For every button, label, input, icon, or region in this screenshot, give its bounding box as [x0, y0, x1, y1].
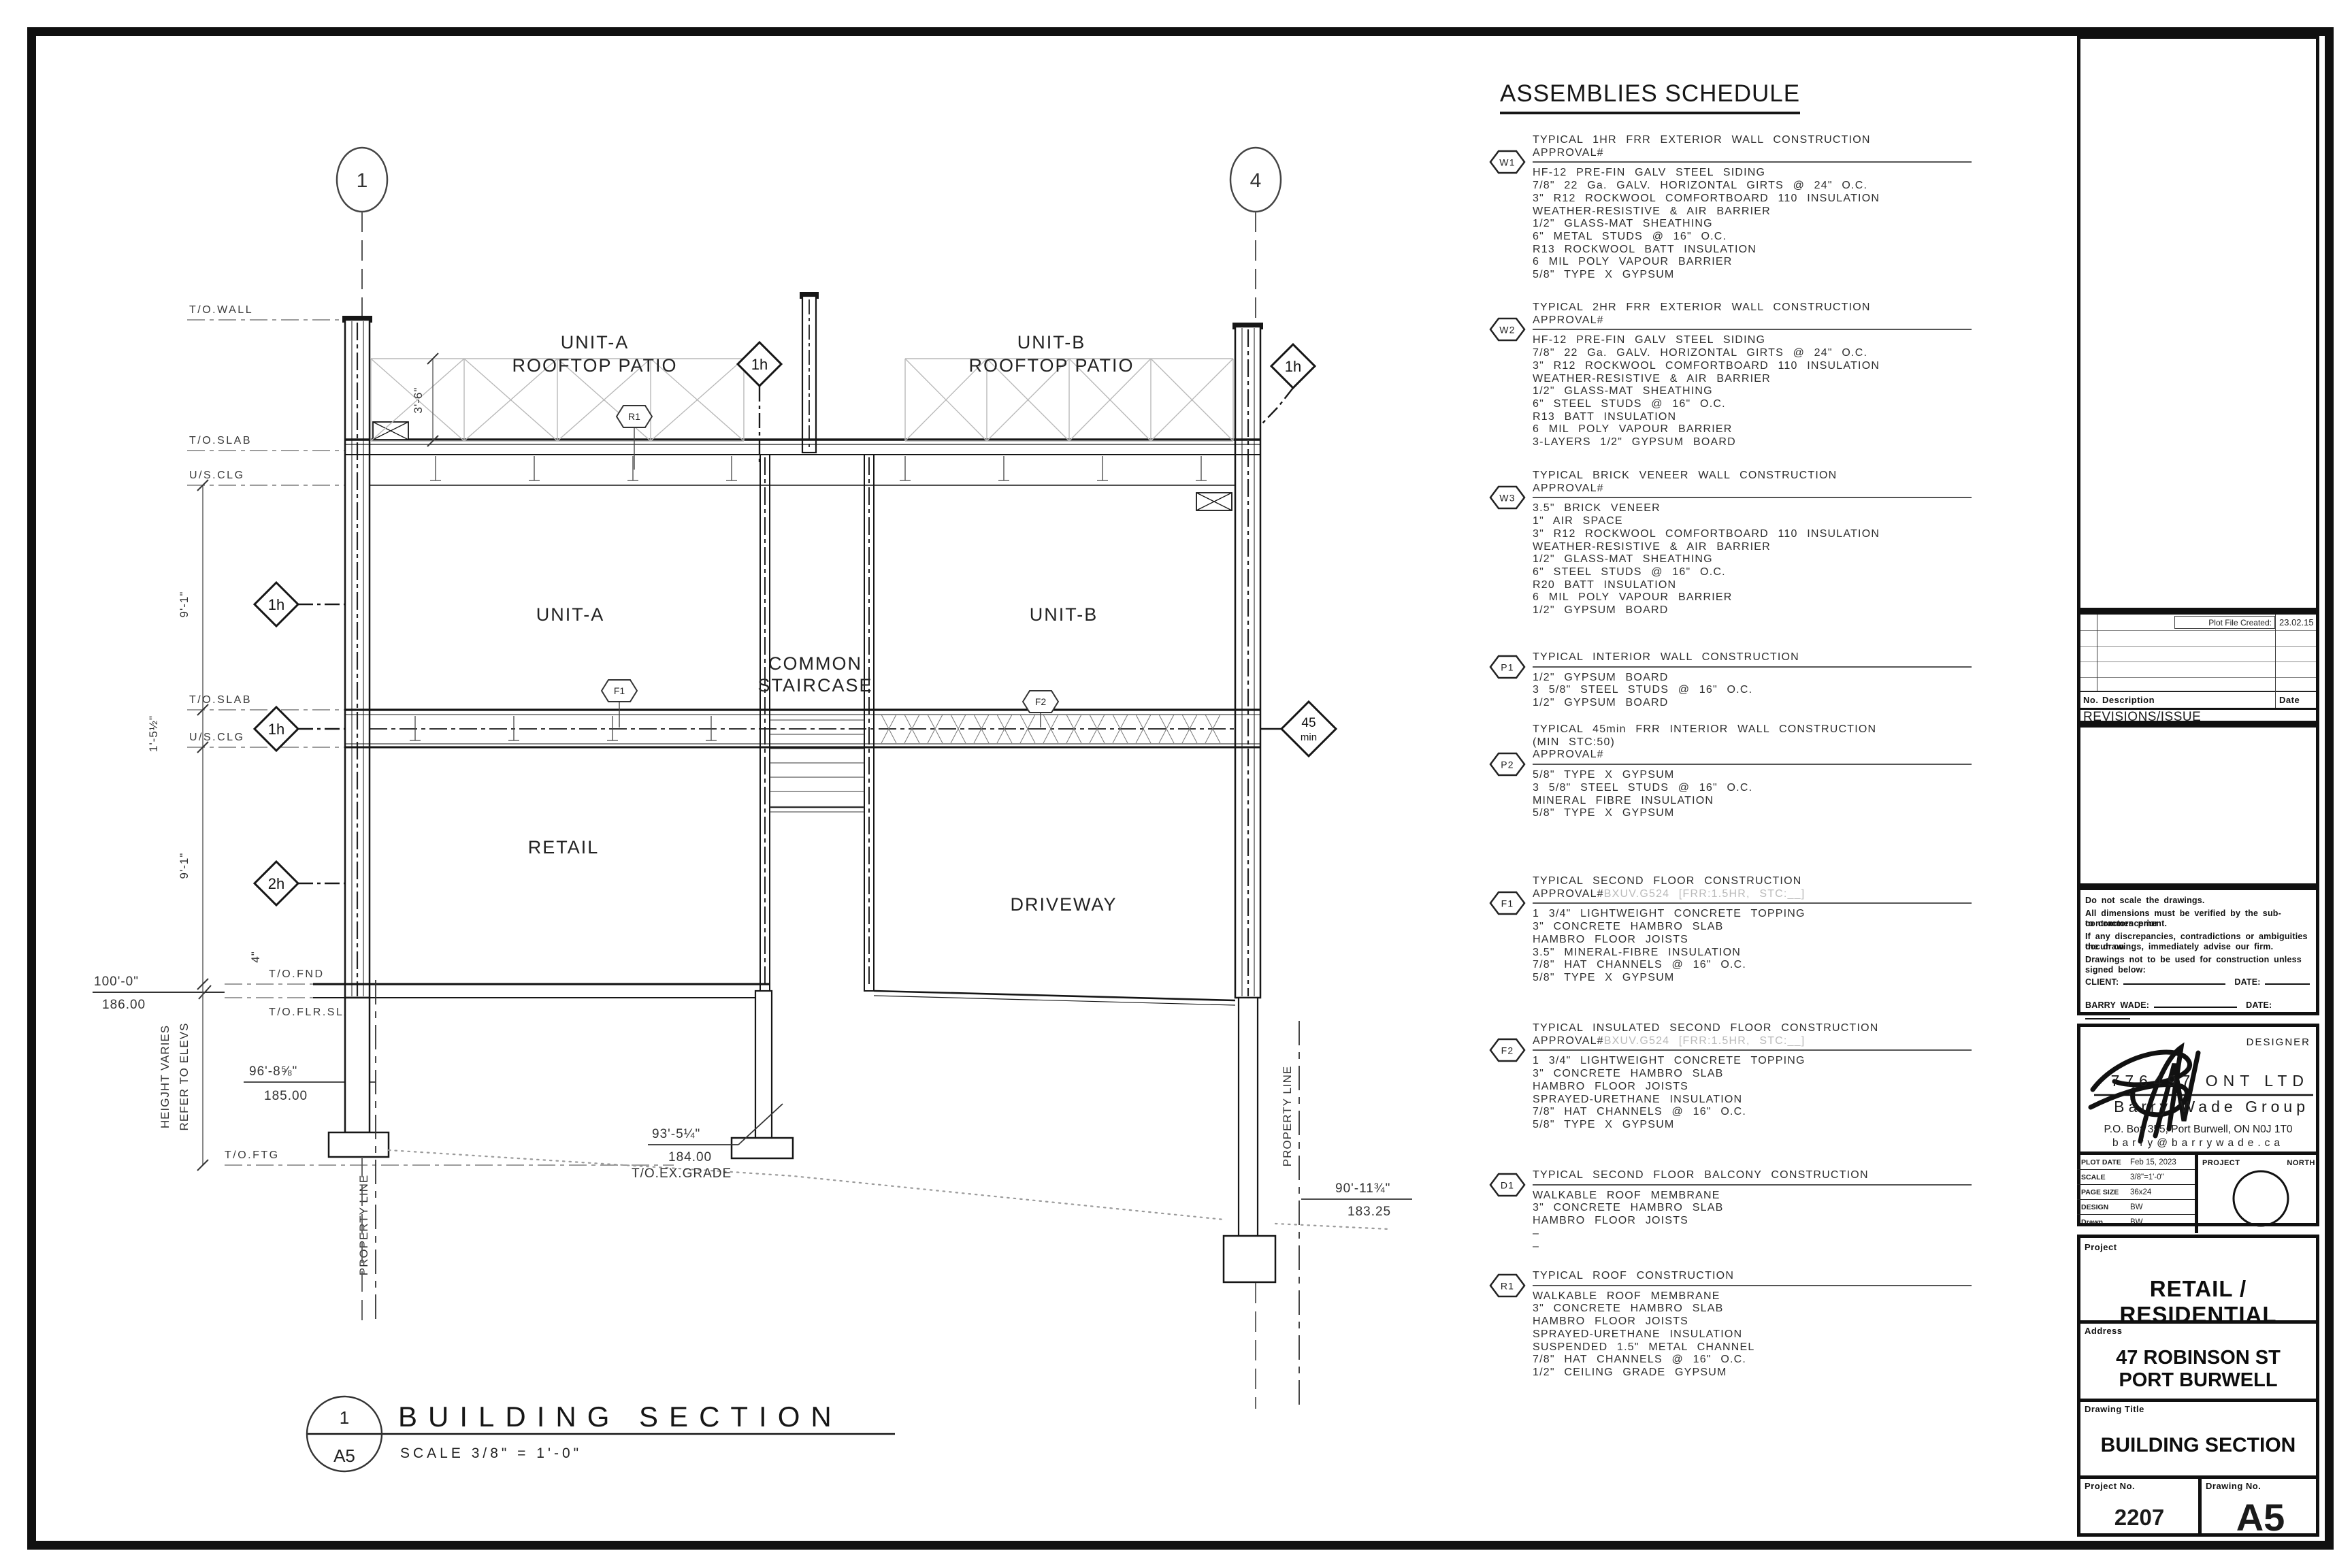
guard-height-dim: 3'-6" [412, 353, 438, 446]
ground-floor-slab [313, 984, 1235, 1005]
north-circle [2227, 1167, 2295, 1230]
elev-93-5: 93'-5¼" [652, 1127, 700, 1141]
tag-f1: F1 [1501, 898, 1514, 909]
assembly-title-2: (MIN STC:50) [1533, 736, 2009, 749]
label-unit-a-patio-2: ROOFTOP PATIO [512, 355, 677, 376]
designer-underline [2082, 1094, 2317, 1096]
tag-p1: P1 [1501, 661, 1514, 672]
assembly-approval: APPROVAL# [1533, 749, 1604, 760]
assembly-items: WALKABLE ROOF MEMBRANE3" CONCRETE HAMBRO… [1533, 1190, 2009, 1254]
tag-w3: W3 [1499, 493, 1515, 504]
elev-90-11: 90'-11¾" [1335, 1181, 1390, 1196]
design-label: DESIGN [2081, 1203, 2108, 1211]
designer-address: P.O. Box 355, Port Burwell, ON N0J 1T0 [2080, 1124, 2316, 1136]
level-to-ftg: T/O.FTG [225, 1149, 280, 1161]
designer-company: 776497 ONT LTD [2111, 1072, 2309, 1090]
elev-96-8: 96'-8⅝" [249, 1064, 297, 1079]
tag-45: 45 [1301, 716, 1316, 730]
designer-group: Barry Wade Group [2114, 1098, 2309, 1116]
barry-date-line [2085, 1011, 2130, 1019]
level-to-slab-2: T/O.SLAB [189, 694, 252, 706]
assembly-items: 5/8" TYPE X GYPSUM3 5/8" STEEL STUDS @ 1… [1533, 769, 2009, 820]
tag-2h: 2h [268, 875, 284, 892]
assembly-f2: TYPICAL INSULATED SECOND FLOOR CONSTRUCT… [1533, 1022, 2009, 1132]
date-label-2: DATE: [2246, 1000, 2272, 1010]
dim-3-6: 3'-6" [412, 387, 425, 414]
plot-file-created-date: 23.02.15 [2279, 617, 2314, 627]
beam-section-right [1196, 493, 1232, 510]
rev-col-no: No. [2083, 695, 2098, 705]
tag-1h-a: 1h [751, 356, 768, 373]
level-to-wall: T/O.WALL [189, 304, 253, 316]
tag-f2: F2 [1501, 1045, 1514, 1056]
grid-line-tails [362, 1157, 1256, 1409]
drawing-scale-text: SCALE 3/8" = 1'-0" [400, 1445, 582, 1461]
assembly-approval: APPROVAL# [1533, 314, 1604, 326]
drawing-title-label: Drawing Title [2085, 1404, 2144, 1414]
stair-shaft-walls [760, 455, 874, 991]
elev-100-0: 100'-0" [94, 975, 139, 989]
barry-signature-line [2154, 999, 2237, 1008]
dim-9-1-lower: 9'-1" [178, 853, 191, 879]
assembly-title: TYPICAL INSULATED SECOND FLOOR CONSTRUCT… [1533, 1022, 2009, 1035]
assembly-title: TYPICAL 2HR FRR EXTERIOR WALL CONSTRUCTI… [1533, 301, 2009, 314]
designer-label: DESIGNER [2247, 1036, 2310, 1048]
assembly-approval: APPROVAL# [1533, 147, 1604, 159]
plot-date-value: Feb 15, 2023 [2130, 1158, 2176, 1166]
dim-4in: 4" [249, 951, 262, 963]
tag-r1: R1 [628, 411, 640, 422]
elev-184: 184.00 [668, 1150, 712, 1164]
level-to-slab: T/O.SLAB [189, 435, 252, 446]
elev-185: 185.00 [264, 1089, 308, 1103]
assembly-p1: TYPICAL INTERIOR WALL CONSTRUCTION P1 1/… [1533, 651, 2009, 710]
assembly-title: TYPICAL SECOND FLOOR CONSTRUCTION [1533, 875, 2009, 888]
notes-box: Do not scale the drawings. All dimension… [2077, 887, 2319, 1015]
client-signature-line [2123, 976, 2225, 985]
project-info-block: Project RETAIL / RESIDENTIAL Address 47 … [2077, 1235, 2319, 1537]
label-unit-a-patio-1: UNIT-A [561, 332, 630, 353]
page-size-label: PAGE SIZE [2081, 1188, 2119, 1196]
assembly-title: TYPICAL BRICK VENEER WALL CONSTRUCTION [1533, 470, 2009, 483]
drawn-value: BW [2130, 1218, 2143, 1226]
rev-col-date: Date [2279, 695, 2300, 705]
project-compass-label: PROJECT [2202, 1159, 2240, 1167]
label-common: COMMON [768, 653, 862, 674]
revisions-issue-label: REVISIONS/ISSUE [2083, 710, 2201, 725]
drawing-title-text: BUILDING SECTION [398, 1401, 843, 1433]
detail-sheet: A5 [333, 1445, 355, 1466]
label-unit-b-patio-2: ROOFTOP PATIO [968, 355, 1134, 376]
level-us-clg-2: U/S.CLG [189, 732, 245, 743]
project-label: Project [2085, 1242, 2117, 1252]
assembly-title: TYPICAL INTERIOR WALL CONSTRUCTION [1533, 651, 2009, 664]
north-box: PROJECT NORTH [2195, 1155, 2319, 1233]
revisions-table: Plot File Created: 23.02.15 No. Descript… [2077, 611, 2319, 724]
assembly-w2: TYPICAL 2HR FRR EXTERIOR WALL CONSTRUCTI… [1533, 301, 2009, 449]
rating-diamond-1h-left-lower: 1h [255, 707, 345, 751]
grid-bubble-1: 1 [337, 148, 387, 317]
plot-file-created-label: Plot File Created: [2174, 616, 2275, 629]
building-section-drawing: 1 4 T/O.WALL T/O.SLAB U/S.CLG T/O.SLAB U… [0, 0, 1497, 1568]
assembly-f1: TYPICAL SECOND FLOOR CONSTRUCTION APPROV… [1533, 875, 2009, 985]
address-line-2: PORT BURWELL [2080, 1369, 2316, 1392]
property-line-left-label: PROPERTY LINE [357, 1175, 370, 1275]
client-label: CLIENT: [2085, 977, 2119, 987]
staircase [770, 720, 864, 812]
tag-w2: W2 [1499, 325, 1515, 336]
note-line-3: to commencement. [2085, 919, 2167, 929]
drawing-title-bar: 1 A5 BUILDING SECTION SCALE 3/8" = 1'-0" [306, 1396, 895, 1471]
assembly-w3: TYPICAL BRICK VENEER WALL CONSTRUCTION A… [1533, 470, 2009, 617]
detail-number: 1 [340, 1407, 349, 1428]
address-label: Address [2085, 1326, 2123, 1336]
rating-diamond-1h-right-top: 1h [1262, 344, 1315, 423]
label-unit-a: UNIT-A [536, 604, 605, 625]
assembly-p2: TYPICAL 45min FRR INTERIOR WALL CONSTRUC… [1533, 723, 2009, 820]
dim-height-varies-1: HEIGJHT VARIES [159, 1025, 171, 1128]
rev-col-description: Description [2102, 695, 2155, 705]
assembly-d1: TYPICAL SECOND FLOOR BALCONY CONSTRUCTIO… [1533, 1169, 2009, 1253]
plot-date-label: PLOT DATE [2081, 1158, 2121, 1166]
north-label: NORTH [2287, 1159, 2315, 1167]
rating-diamond-45min: 45 min [1260, 702, 1336, 756]
design-value: BW [2130, 1203, 2143, 1211]
assembly-items: 3.5" BRICK VENEER1" AIR SPACE3" R12 ROCK… [1533, 502, 2009, 617]
dim-1-5half: 1'-5½" [147, 715, 160, 752]
dimension-chain-left: 9'-1" 1'-5½" 9'-1" HEIGJHT VARIES REFER … [147, 480, 208, 1171]
titleblock-empty-mid [2077, 724, 2319, 887]
tag-1h-b: 1h [1285, 358, 1301, 375]
property-line-right: PROPERTY LINE [1281, 1021, 1299, 1409]
client-date-line [2265, 976, 2310, 985]
assembly-items: 1 3/4" LIGHTWEIGHT CONCRETE TOPPING3" CO… [1533, 908, 2009, 984]
tag-d1: D1 [1501, 1179, 1514, 1190]
center-column-footing [732, 991, 793, 1158]
date-label-1: DATE: [2234, 977, 2260, 987]
level-us-clg: U/S.CLG [189, 470, 245, 481]
scale-label: SCALE [2081, 1173, 2106, 1181]
drawing-no-label: Drawing No. [2206, 1481, 2261, 1491]
stair-bulkhead-wall [800, 292, 819, 453]
tag-p2: P2 [1501, 759, 1514, 770]
tag-hex-f2: F2 [1023, 691, 1058, 728]
grid-label-1: 1 [357, 169, 368, 192]
elevation-markers-left: 100'-0" 186.00 96'-8⅝" 185.00 [93, 975, 376, 1103]
assembly-title: TYPICAL ROOF CONSTRUCTION [1533, 1270, 2009, 1283]
note-line-5: the drawings, immediately advise our fir… [2085, 942, 2273, 952]
assembly-approval-ref: BXUV.G524 [FRR:1.5HR, STC:__] [1604, 1035, 1806, 1047]
tag-45min: min [1301, 732, 1317, 743]
barry-wade-label: BARRY WADE: [2085, 1000, 2149, 1010]
tag-f1: F1 [614, 685, 625, 696]
titleblock-empty-top [2077, 35, 2319, 611]
elev-186: 186.00 [102, 998, 146, 1012]
scale-value: 3/8"=1'-0" [2130, 1173, 2164, 1181]
assembly-items: HF-12 PRE-FIN GALV STEEL SIDING7/8" 22 G… [1533, 334, 2009, 448]
label-to-ex-grade: T/O.EX.GRADE [632, 1166, 732, 1181]
label-retail: RETAIL [528, 837, 600, 857]
beam-section-left [373, 422, 408, 440]
drawing-title-value: BUILDING SECTION [2080, 1434, 2316, 1457]
address-line-1: 47 ROBINSON ST [2080, 1347, 2316, 1369]
tag-1h-c: 1h [268, 596, 284, 613]
tag-w1: W1 [1499, 157, 1515, 168]
drawing-sheet: 1 4 T/O.WALL T/O.SLAB U/S.CLG T/O.SLAB U… [0, 0, 2352, 1568]
elev-183: 183.25 [1347, 1205, 1391, 1219]
tag-1h-d: 1h [268, 721, 284, 738]
assembly-r1: TYPICAL ROOF CONSTRUCTION R1 WALKABLE RO… [1533, 1270, 2009, 1379]
assembly-title: TYPICAL 45min FRR INTERIOR WALL CONSTRUC… [1533, 723, 2009, 736]
grid-bubble-4: 4 [1230, 148, 1281, 324]
room-labels: UNIT-A ROOFTOP PATIO UNIT-B ROOFTOP PATI… [512, 332, 1134, 915]
plot-info-table: PLOT DATEFeb 15, 2023 SCALE3/8"=1'-0" PA… [2077, 1151, 2319, 1233]
second-floor-assembly [345, 710, 1260, 747]
property-line-right-label: PROPERTY LINE [1281, 1066, 1294, 1166]
drawing-no-value: A5 [2202, 1495, 2319, 1539]
assembly-title: TYPICAL SECOND FLOOR BALCONY CONSTRUCTIO… [1533, 1169, 2009, 1182]
grade-elev-right: 90'-11¾" 183.25 [1301, 1181, 1412, 1219]
rating-diamond-2h-left: 2h [255, 862, 345, 905]
assembly-items: HF-12 PRE-FIN GALV STEEL SIDING7/8" 22 G… [1533, 167, 2009, 281]
label-driveway: DRIVEWAY [1010, 894, 1117, 915]
assembly-items: WALKABLE ROOF MEMBRANE3" CONCRETE HAMBRO… [1533, 1290, 2009, 1379]
assembly-approval: APPROVAL# [1533, 1035, 1604, 1047]
rating-diamond-1h-left-upper: 1h [255, 583, 345, 626]
tag-r1-sched: R1 [1501, 1280, 1514, 1291]
page-size-value: 36x24 [2130, 1188, 2151, 1196]
assembly-w1: TYPICAL 1HR FRR EXTERIOR WALL CONSTRUCTI… [1533, 134, 2009, 282]
assembly-items: 1/2" GYPSUM BOARD3 5/8" STEEL STUDS @ 16… [1533, 672, 2009, 710]
designer-block: DESIGNER 776497 ONT LTD Barry Wade Group… [2077, 1024, 2319, 1226]
project-no-label: Project No. [2085, 1481, 2135, 1491]
tag-hex-f1: F1 [602, 680, 637, 728]
assembly-items: 1 3/4" LIGHTWEIGHT CONCRETE TOPPING3" CO… [1533, 1055, 2009, 1131]
drawn-label: Drawn [2081, 1218, 2103, 1226]
note-line-6: Drawings not to be used for construction… [2085, 955, 2317, 975]
dim-height-varies-2: REFER TO ELEVS [178, 1023, 191, 1131]
designer-email: barry@barrywade.ca [2080, 1137, 2316, 1149]
right-exterior-wall [1224, 323, 1275, 1282]
tag-f2: F2 [1035, 696, 1047, 707]
level-to-fnd: T/O.FND [269, 968, 325, 980]
assembly-approval: APPROVAL# [1533, 888, 1604, 900]
assembly-approval-ref: BXUV.G524 [FRR:1.5HR, STC:__] [1604, 888, 1806, 900]
dim-9-1-upper: 9'-1" [178, 591, 191, 618]
assembly-title: TYPICAL 1HR FRR EXTERIOR WALL CONSTRUCTI… [1533, 134, 2009, 147]
label-unit-b-patio-1: UNIT-B [1017, 332, 1086, 353]
label-unit-b: UNIT-B [1030, 604, 1098, 625]
schedule-title: ASSEMBLIES SCHEDULE [1500, 80, 1800, 114]
note-line-1: Do not scale the drawings. [2085, 896, 2205, 906]
assembly-approval: APPROVAL# [1533, 483, 1604, 494]
left-exterior-wall [329, 316, 389, 1157]
project-no-value: 2207 [2080, 1505, 2198, 1531]
grid-label-4: 4 [1250, 169, 1262, 192]
label-staircase: STAIRCASE [757, 675, 872, 696]
